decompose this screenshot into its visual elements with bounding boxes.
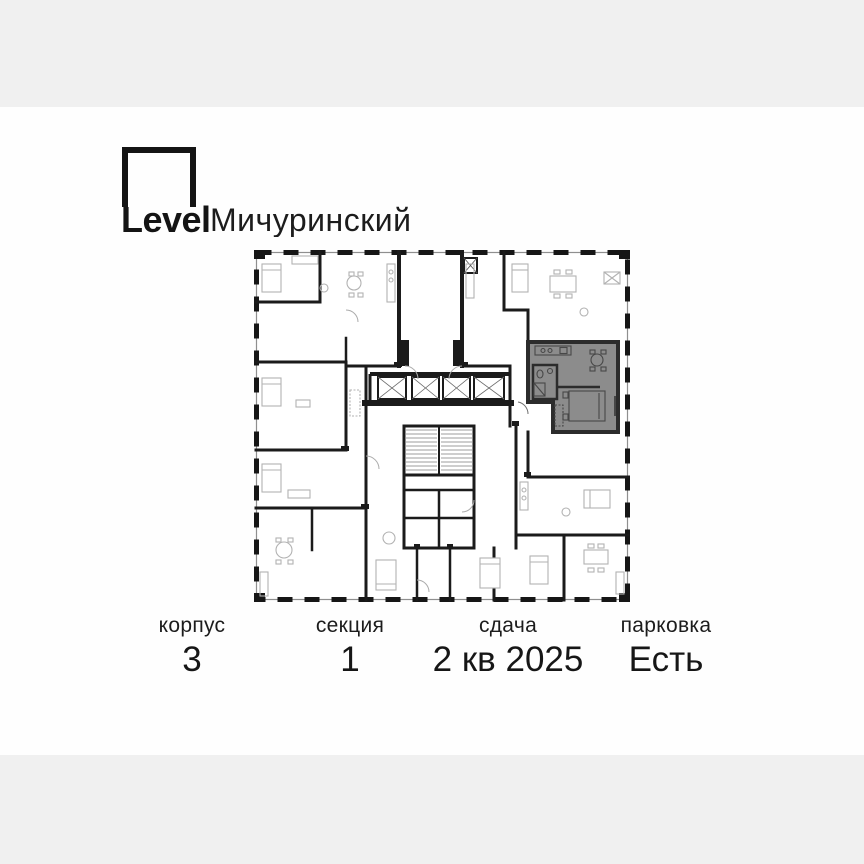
info-parking: парковка Есть (556, 613, 776, 680)
logo-project-text: Мичуринский (210, 202, 411, 237)
floor-plan (254, 250, 630, 602)
stairs (404, 426, 474, 475)
info-parking-value: Есть (556, 640, 776, 680)
info-parking-label: парковка (556, 613, 776, 639)
logo-brand-text: Level (121, 199, 211, 237)
level-logo: Level Мичуринский (120, 145, 420, 237)
